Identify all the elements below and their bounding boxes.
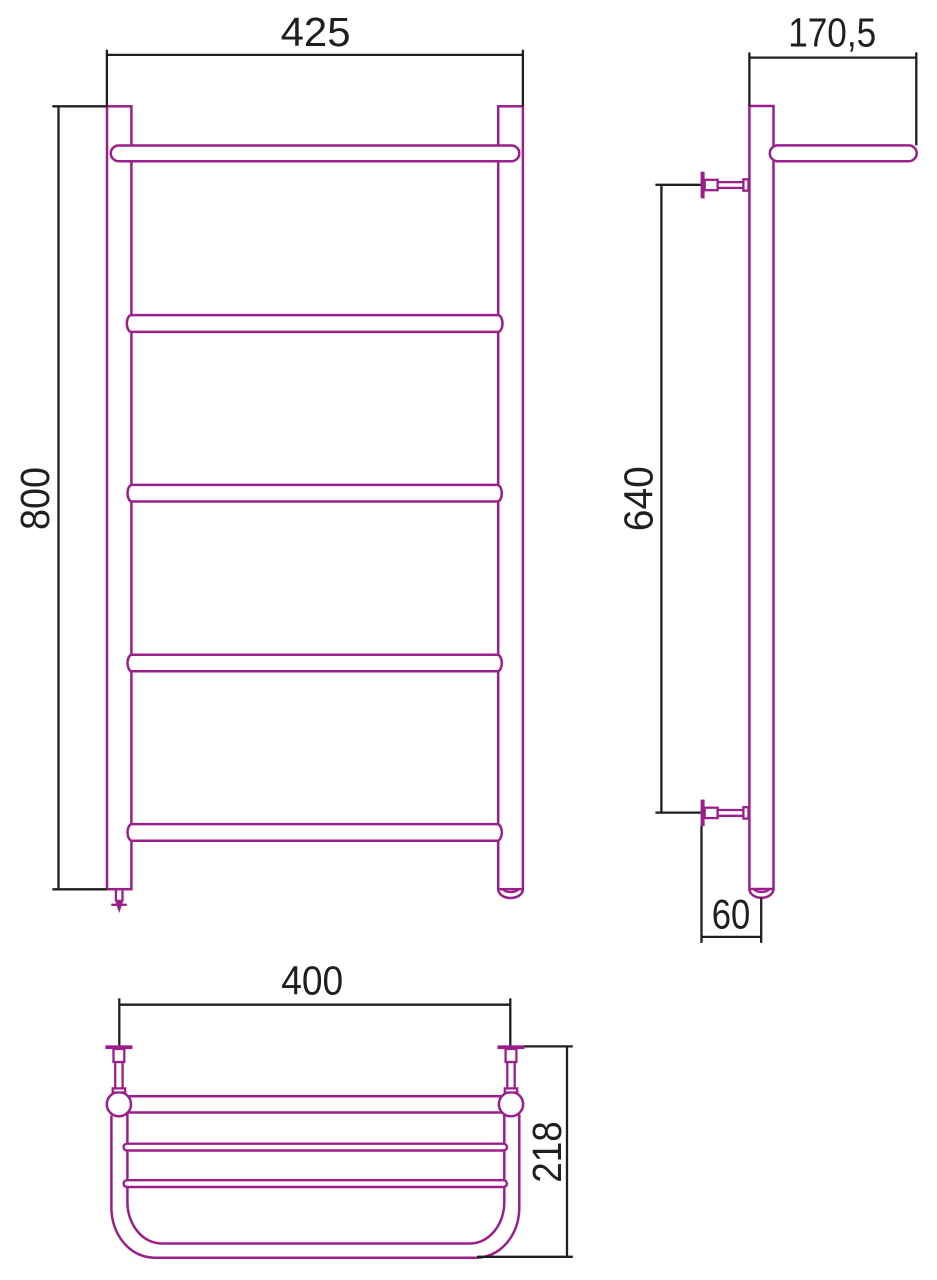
svg-text:425: 425 (281, 9, 351, 55)
svg-text:170,5: 170,5 (788, 9, 876, 55)
svg-text:60: 60 (712, 890, 751, 937)
svg-text:640: 640 (616, 466, 662, 531)
svg-text:400: 400 (281, 958, 343, 1004)
svg-text:218: 218 (524, 1121, 570, 1183)
svg-text:800: 800 (12, 467, 58, 530)
